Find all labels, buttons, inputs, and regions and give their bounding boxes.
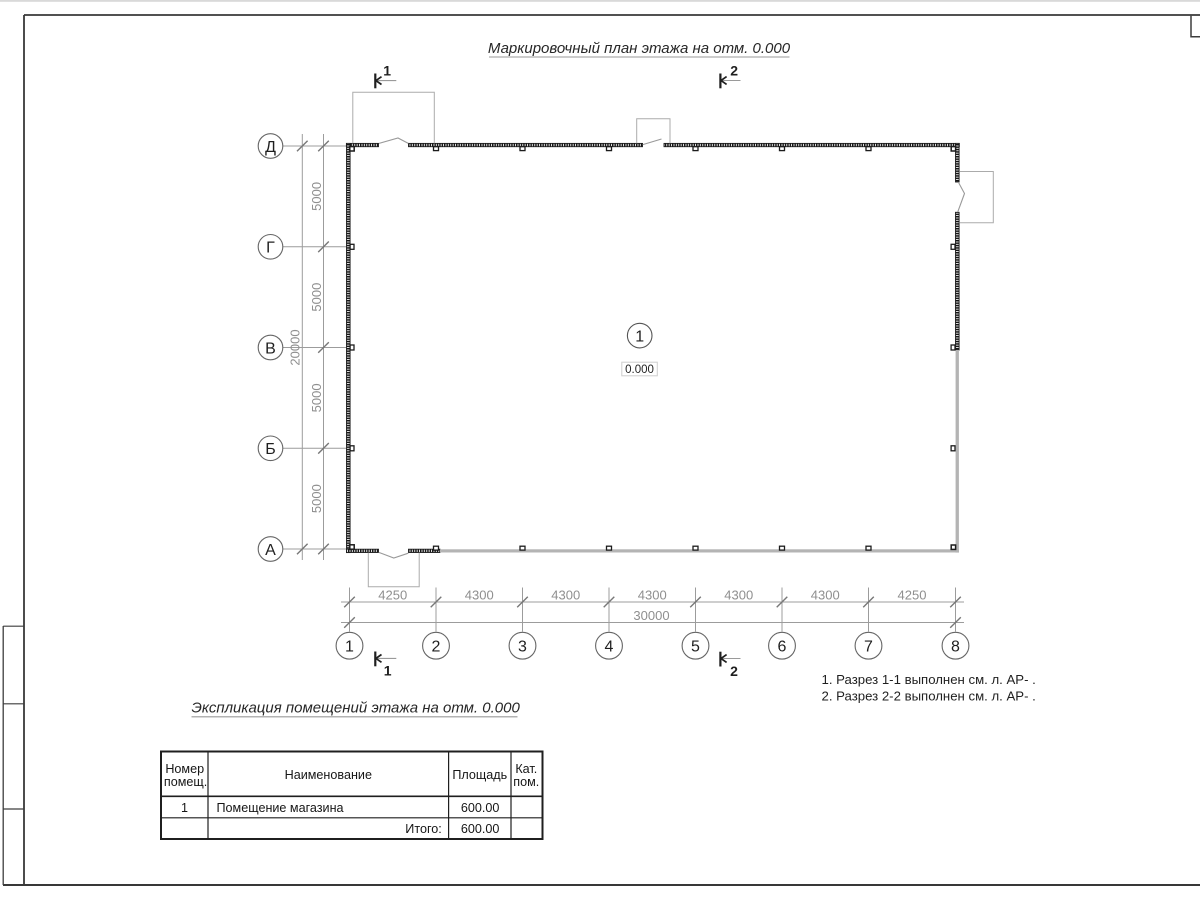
svg-text:4300: 4300 [465, 588, 494, 603]
svg-text:0.000: 0.000 [625, 364, 654, 376]
svg-text:Помещение магазина: Помещение магазина [217, 801, 344, 815]
svg-text:Д: Д [265, 139, 276, 156]
svg-text:6: 6 [778, 639, 787, 656]
svg-text:2: 2 [432, 639, 441, 656]
svg-text:2: 2 [730, 663, 738, 679]
svg-text:4: 4 [605, 639, 614, 656]
svg-text:20000: 20000 [287, 329, 302, 365]
svg-text:пом.: пом. [513, 775, 539, 789]
svg-text:5: 5 [691, 639, 700, 656]
svg-text:Экспликация помещений этажа на: Экспликация помещений этажа на отм. 0.00… [192, 700, 521, 717]
svg-text:Кат.: Кат. [515, 762, 537, 776]
svg-text:4300: 4300 [638, 588, 667, 603]
svg-text:5000: 5000 [309, 484, 324, 513]
svg-text:7: 7 [864, 639, 873, 656]
svg-text:Итого:: Итого: [405, 822, 442, 836]
svg-text:1: 1 [345, 639, 354, 656]
svg-text:4300: 4300 [724, 588, 753, 603]
svg-text:Площадь: Площадь [452, 768, 507, 782]
svg-text:А: А [265, 542, 276, 559]
svg-text:1: 1 [384, 663, 392, 679]
svg-text:2. Разрез 2-2 выполнен см. л.: 2. Разрез 2-2 выполнен см. л. АР- . [822, 688, 1036, 703]
svg-text:1: 1 [635, 328, 644, 345]
svg-text:4300: 4300 [811, 588, 840, 603]
svg-text:Г: Г [266, 240, 275, 257]
svg-text:1: 1 [383, 62, 391, 78]
svg-text:В: В [265, 340, 276, 357]
svg-text:3: 3 [518, 639, 527, 656]
svg-text:помещ.: помещ. [164, 775, 207, 789]
svg-text:5000: 5000 [309, 383, 324, 412]
svg-text:4300: 4300 [551, 588, 580, 603]
svg-text:Б: Б [265, 441, 276, 458]
svg-text:4250: 4250 [378, 588, 407, 603]
svg-text:Маркировочный план этажа на от: Маркировочный план этажа на отм. 0.000 [488, 40, 791, 57]
svg-text:Номер: Номер [165, 762, 204, 776]
svg-text:5000: 5000 [309, 182, 324, 211]
svg-text:8: 8 [951, 639, 960, 656]
svg-text:1. Разрез 1-1 выполнен см. л.: 1. Разрез 1-1 выполнен см. л. АР- . [822, 672, 1036, 687]
svg-text:1: 1 [181, 801, 188, 815]
svg-text:30000: 30000 [633, 608, 669, 623]
svg-text:4250: 4250 [898, 588, 927, 603]
svg-text:2: 2 [730, 63, 738, 79]
svg-text:Наименование: Наименование [285, 768, 372, 782]
svg-text:600.00: 600.00 [461, 822, 500, 836]
svg-text:600.00: 600.00 [461, 801, 500, 815]
svg-text:5000: 5000 [309, 283, 324, 312]
